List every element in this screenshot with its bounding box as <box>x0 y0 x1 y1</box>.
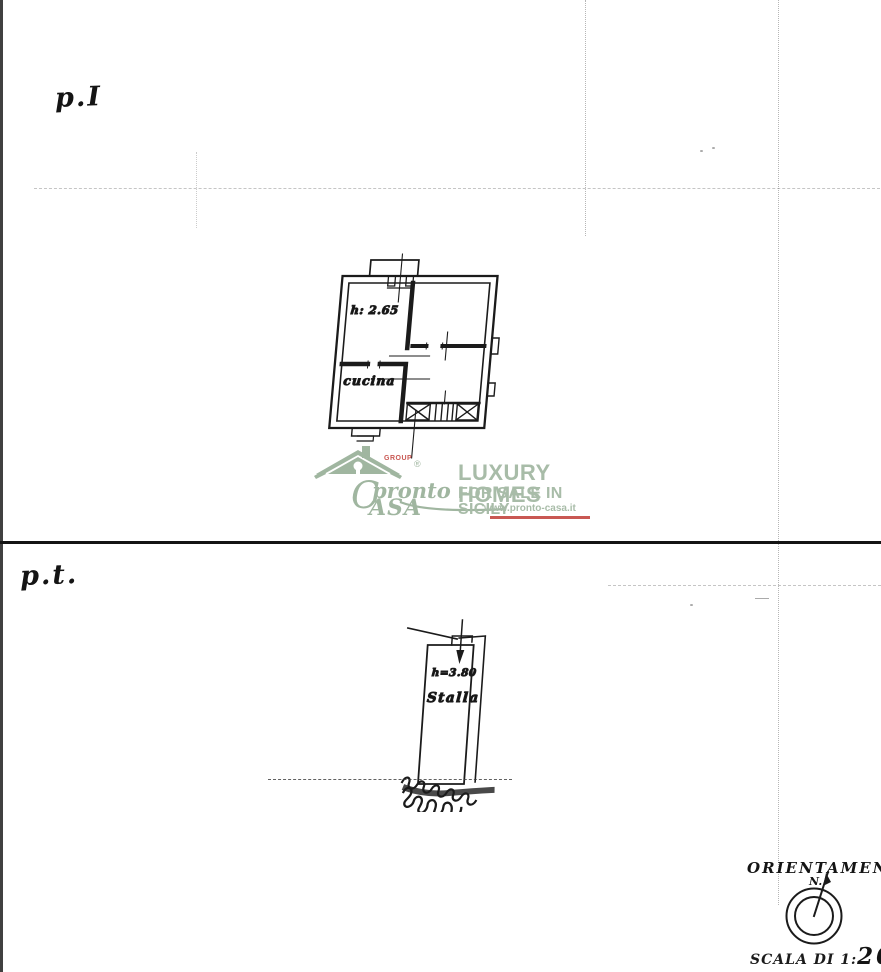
scanned-floorplan-page: p.I p.t. <box>0 0 881 972</box>
website-text: www.pronto-casa.it <box>484 504 576 514</box>
interior-wall-vertical <box>401 283 413 421</box>
grid-line-horizontal <box>34 188 880 189</box>
scan-speck <box>755 598 769 599</box>
upper-floor-label: p.I <box>54 81 102 114</box>
floor-divider-line <box>0 541 881 544</box>
grid-line-vertical <box>196 152 197 228</box>
stair-x-cross <box>456 404 478 420</box>
entry-arrow-head <box>455 650 464 664</box>
scale-value: 200 <box>857 943 881 970</box>
grid-line-horizontal <box>608 585 881 586</box>
lower-floor-plan-drawing: h=3.80 Stalla <box>370 612 520 812</box>
lower-plan-height-label: h=3.80 <box>431 667 477 679</box>
stair-treads <box>435 404 453 420</box>
bottom-step <box>357 436 373 441</box>
scale-prefix: SCALA DI 1: <box>750 952 857 968</box>
registered-mark: ® <box>414 460 421 469</box>
logo-group-text: GROUP <box>384 455 412 462</box>
compass-icon <box>778 858 854 953</box>
upper-plan-height-label: h: 2.65 <box>350 303 399 317</box>
stalla-outline <box>418 645 474 784</box>
bottom-step <box>352 428 381 436</box>
balcony-outline <box>370 260 419 276</box>
grid-line-vertical <box>585 0 586 236</box>
boundary-diagonal-line <box>407 628 458 639</box>
red-underline <box>490 516 590 519</box>
scale-annotation: SCALA DI 1:200 <box>750 943 881 970</box>
ground-dashed-line <box>268 779 512 780</box>
door-axis-line <box>398 254 402 302</box>
lower-plan-room-label: Stalla <box>426 690 480 706</box>
lower-floor-label: p.t. <box>19 559 78 592</box>
pronto-casa-watermark: GROUP ® C pronto ASA LUXURY HOMES FOR SA… <box>268 444 580 516</box>
grid-line-vertical <box>778 0 779 905</box>
outer-wall-line <box>449 636 485 782</box>
entry-jamb <box>388 276 396 286</box>
eave-icon <box>314 470 326 479</box>
north-arrow-head <box>823 873 831 886</box>
stair-x-cross <box>406 404 430 420</box>
scan-speck <box>700 150 703 152</box>
upper-plan-room-label: cucina <box>343 373 397 388</box>
scan-left-edge <box>0 0 3 972</box>
door-jamb-lines <box>426 343 443 349</box>
scan-speck <box>690 604 693 606</box>
rubble-scribble <box>405 788 491 793</box>
scan-speck <box>712 147 715 149</box>
